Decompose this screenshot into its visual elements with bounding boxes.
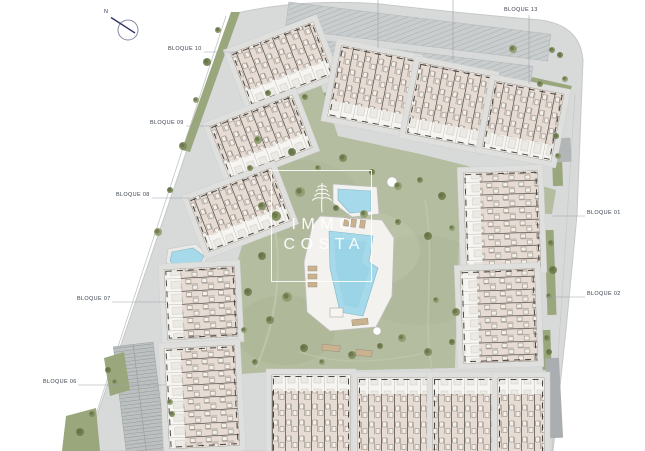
tree — [509, 45, 517, 53]
pool-house — [330, 308, 343, 317]
tree — [452, 308, 460, 316]
tree — [549, 47, 555, 53]
tree — [105, 367, 111, 373]
tree — [271, 211, 281, 221]
site-plan-map — [0, 0, 645, 451]
tree — [433, 297, 439, 303]
tree — [398, 334, 406, 342]
tree — [252, 359, 258, 365]
tree — [537, 81, 543, 87]
tree — [295, 187, 305, 197]
tree — [258, 252, 266, 260]
label-bloque-07: BLOQUE 07 — [77, 297, 111, 303]
tree — [395, 219, 401, 225]
tree — [339, 154, 347, 162]
tree — [247, 165, 253, 171]
label-bloque-08: BLOQUE 08 — [116, 193, 150, 199]
tree — [167, 187, 173, 193]
umbrella — [373, 327, 381, 335]
tree — [369, 169, 375, 175]
tree — [348, 351, 356, 359]
tree — [315, 165, 321, 171]
tree — [215, 27, 221, 33]
tree — [244, 288, 252, 296]
label-bloque-10: BLOQUE 10 — [168, 47, 202, 53]
tree — [544, 335, 550, 341]
tree — [203, 58, 211, 66]
label-bloque-09: BLOQUE 09 — [150, 121, 184, 127]
tree — [424, 348, 432, 356]
building-bottom-row-2 — [352, 372, 436, 451]
tree — [265, 90, 271, 96]
tree — [76, 428, 84, 436]
tree — [319, 359, 325, 365]
tree — [555, 153, 561, 159]
tree — [546, 293, 552, 299]
tree — [193, 97, 199, 103]
tree — [549, 266, 557, 274]
tree — [154, 228, 162, 236]
tree — [169, 411, 175, 417]
building-bloque-01 — [457, 165, 547, 276]
building-bloque-06 — [158, 339, 246, 451]
tree — [548, 240, 554, 246]
tree — [438, 192, 446, 200]
tree — [288, 148, 296, 156]
tree — [449, 339, 455, 345]
tree — [333, 205, 339, 211]
label-bloque-02: BLOQUE 02 — [587, 292, 621, 298]
tree — [424, 232, 432, 240]
tree — [562, 76, 568, 82]
tree — [417, 177, 423, 183]
tree — [557, 52, 563, 58]
tree — [167, 399, 173, 405]
building-bloque-07 — [158, 260, 244, 346]
tree — [258, 202, 266, 210]
tree — [394, 182, 402, 190]
building-bottom-row-4 — [492, 372, 550, 451]
tree — [300, 344, 308, 352]
tree — [266, 316, 274, 324]
building-bottom-row-3 — [427, 372, 501, 451]
north-arrow-icon — [111, 18, 138, 41]
tree — [360, 210, 368, 218]
tree — [112, 379, 118, 385]
north-label: N — [104, 10, 108, 16]
tree — [282, 292, 292, 302]
tree — [89, 411, 95, 417]
building-bloque-02 — [454, 263, 544, 370]
tree — [179, 142, 187, 150]
label-bloque-13: BLOQUE 13 — [504, 8, 538, 14]
tree — [302, 94, 308, 100]
building-bottom-row-1 — [266, 369, 356, 451]
tree — [241, 327, 247, 333]
tree — [377, 343, 383, 349]
label-bloque-06: BLOQUE 06 — [43, 380, 77, 386]
tree — [553, 133, 559, 139]
tree — [254, 136, 262, 144]
tree — [449, 225, 455, 231]
label-bloque-01: BLOQUE 01 — [587, 211, 621, 217]
tree — [546, 349, 552, 355]
